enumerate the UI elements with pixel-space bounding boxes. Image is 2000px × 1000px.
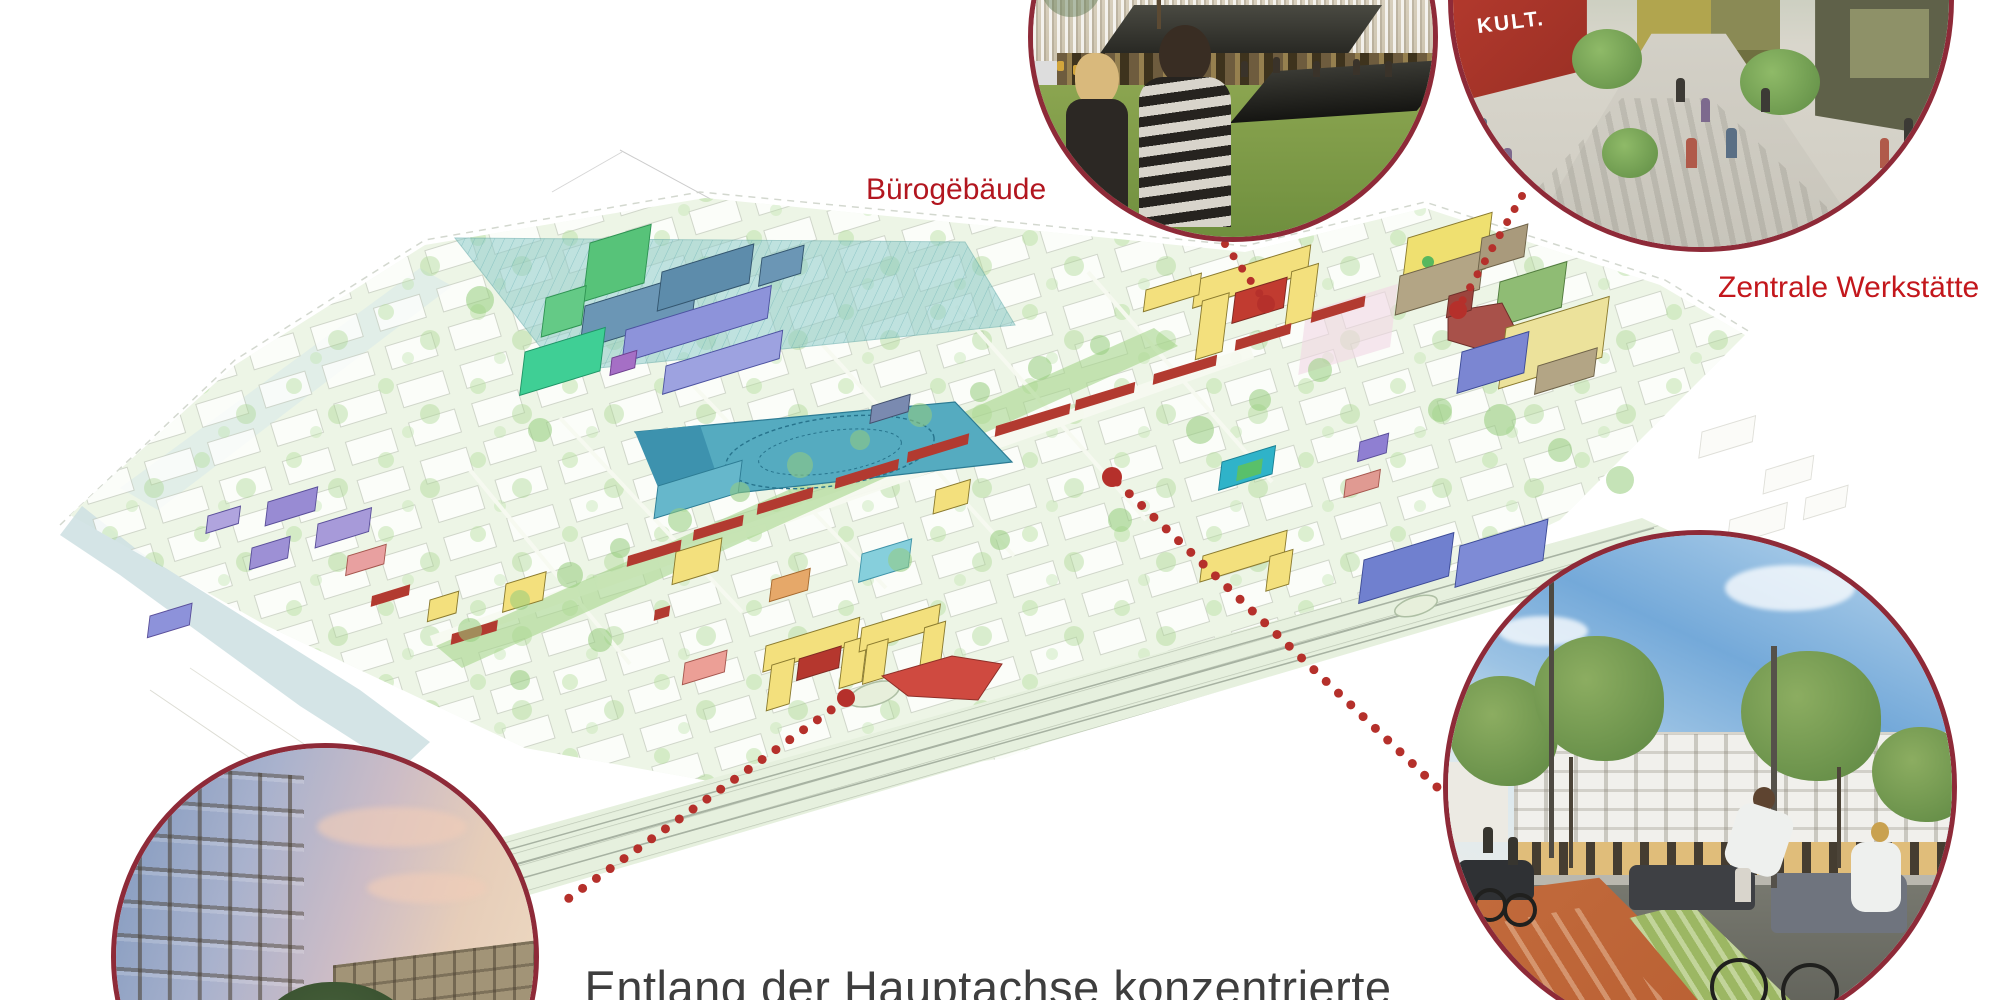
- inset-housing-rendering: [111, 743, 539, 1000]
- tree-trunk: [1569, 757, 1573, 868]
- person: [1241, 61, 1248, 77]
- person: [1761, 88, 1770, 112]
- inset-boulevard-rendering: [1443, 530, 1957, 1000]
- residential-building-left: [111, 762, 304, 1000]
- masterplan-slide: KULT.: [0, 0, 2000, 1000]
- planting: [1740, 49, 1820, 115]
- inset-workshop-rendering: KULT.: [1448, 0, 1954, 252]
- slide-heading: Entlang der Hauptachse konzentrierte: [584, 960, 1391, 1000]
- person-blonde: [1061, 53, 1133, 237]
- person: [1353, 59, 1360, 75]
- person: [1385, 61, 1392, 77]
- kult-sign: KULT.: [1476, 7, 1546, 39]
- planting: [1572, 29, 1642, 89]
- pedestrian-body: [1851, 842, 1901, 912]
- label-office-building: Bürogëbäude: [866, 173, 1046, 207]
- cloud: [317, 807, 467, 847]
- workshop-window: [1850, 9, 1929, 78]
- person: [1904, 118, 1913, 142]
- person: [1503, 148, 1512, 176]
- street-lamp-pole: [1549, 580, 1554, 857]
- planting: [1602, 128, 1658, 178]
- person: [1686, 138, 1697, 168]
- cloud: [1725, 565, 1855, 611]
- person: [1313, 61, 1320, 77]
- cyclist-legs: [1735, 868, 1751, 902]
- tree-trunk: [1837, 767, 1841, 868]
- person: [1701, 98, 1710, 122]
- person: [1273, 57, 1280, 73]
- person: [1726, 128, 1737, 158]
- bike-wheel: [1473, 888, 1507, 922]
- cyclist-silhouette: [1483, 827, 1493, 853]
- person-striped-shirt: [1133, 25, 1237, 237]
- person: [1478, 118, 1487, 142]
- cyclist-silhouette: [1508, 837, 1518, 865]
- person: [1676, 78, 1685, 102]
- inset-office-rendering: [1028, 0, 1438, 242]
- label-central-workshop: Zentrale Werkstätte: [1718, 271, 1979, 305]
- person: [1880, 138, 1889, 168]
